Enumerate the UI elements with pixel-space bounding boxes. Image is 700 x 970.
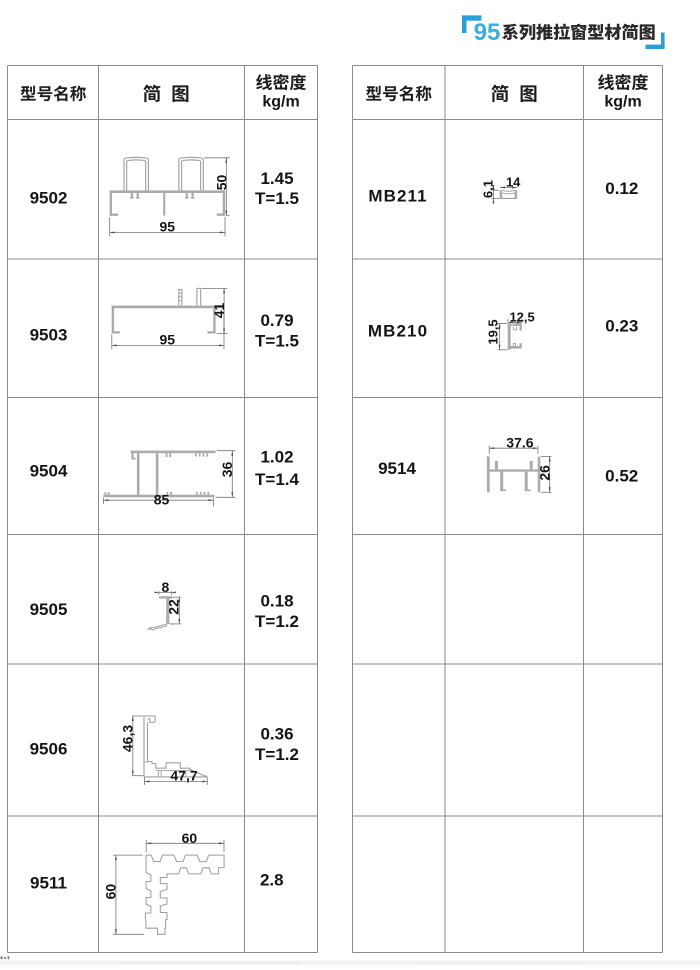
svg-text:0.12: 0.12 (605, 179, 638, 198)
svg-text:MB210: MB210 (368, 322, 428, 341)
svg-text:95: 95 (160, 219, 176, 235)
svg-text:26: 26 (537, 465, 553, 481)
svg-text:85: 85 (154, 492, 170, 508)
svg-text:95: 95 (160, 332, 176, 348)
svg-text:36: 36 (219, 462, 235, 478)
svg-text:T=1.5: T=1.5 (255, 332, 299, 351)
svg-text:95: 95 (474, 19, 501, 46)
svg-text:46,3: 46,3 (119, 725, 135, 752)
svg-text:T=1.2: T=1.2 (255, 745, 299, 764)
svg-text:47,7: 47,7 (170, 767, 197, 783)
svg-text:19,5: 19,5 (486, 319, 501, 344)
svg-text:22: 22 (165, 599, 181, 615)
svg-text:14: 14 (506, 175, 521, 190)
svg-text:12,5: 12,5 (509, 310, 534, 325)
svg-text:41: 41 (211, 303, 227, 319)
svg-text:MB211: MB211 (368, 187, 427, 206)
svg-text:0.23: 0.23 (605, 317, 638, 336)
svg-text:T=1.2: T=1.2 (255, 612, 299, 631)
svg-text:2.8: 2.8 (260, 871, 284, 890)
svg-text:kg/m: kg/m (604, 94, 641, 111)
svg-text:T=1.4: T=1.4 (255, 470, 299, 489)
svg-text:9502: 9502 (30, 189, 68, 208)
svg-text:50: 50 (214, 175, 230, 191)
svg-text:60: 60 (103, 884, 119, 900)
svg-text:T=1.5: T=1.5 (255, 189, 299, 208)
svg-text:9503: 9503 (30, 326, 68, 345)
svg-text:6,1: 6,1 (480, 180, 495, 198)
svg-text:0.36: 0.36 (260, 724, 293, 743)
svg-text:0.79: 0.79 (260, 311, 293, 330)
svg-text:9511: 9511 (30, 874, 67, 893)
svg-text:1.45: 1.45 (260, 169, 293, 188)
svg-text:37.6: 37.6 (506, 434, 533, 450)
svg-text:9514: 9514 (378, 459, 416, 478)
svg-text:60: 60 (182, 830, 198, 846)
svg-text:0.52: 0.52 (605, 467, 638, 486)
svg-text:1.02: 1.02 (260, 448, 293, 467)
svg-text:8: 8 (162, 579, 170, 595)
svg-text:9504: 9504 (30, 462, 68, 481)
svg-text:0.18: 0.18 (260, 592, 293, 611)
svg-text:kg/m: kg/m (262, 94, 299, 111)
svg-text:9505: 9505 (30, 600, 68, 619)
svg-text:9506: 9506 (30, 739, 68, 758)
